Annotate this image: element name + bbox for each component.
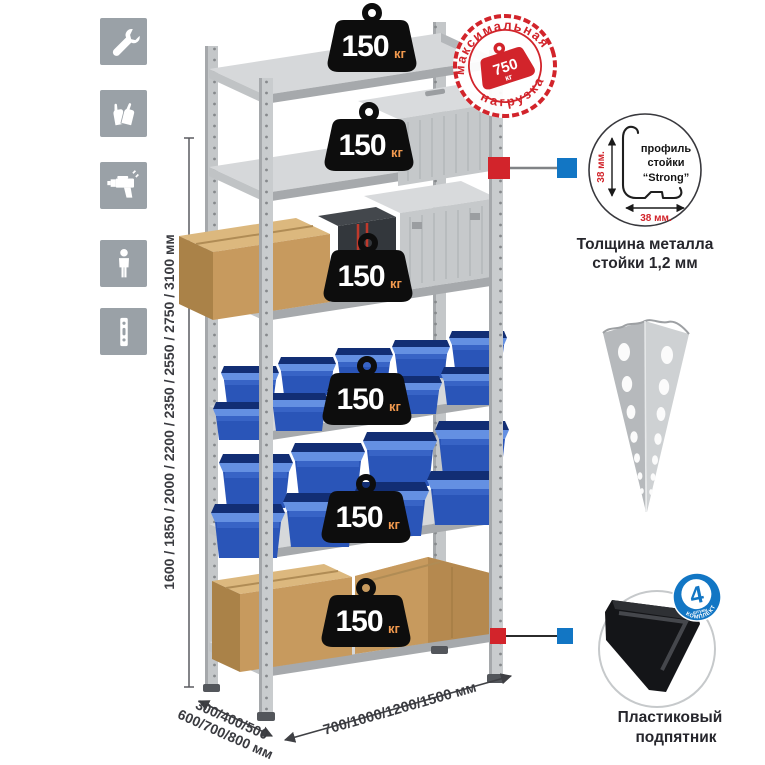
load-unit: кг [391, 145, 404, 160]
width-dimension: 700/1000/1200/1500 мм [285, 676, 511, 740]
connector-blue-square [557, 628, 573, 644]
connector-blue-square [557, 158, 577, 178]
width-label: 700/1000/1200/1500 мм [321, 680, 478, 739]
load-badge-1: 150 кг [328, 6, 417, 72]
connector-red-square [488, 157, 510, 179]
rack-scene: 1600 / 1850 / 2000 / 2200 / 2350 / 2550 … [0, 0, 765, 765]
load-value: 150 [335, 605, 382, 638]
profile-dim-horizontal: 38 мм. [640, 213, 672, 224]
load-unit: кг [390, 276, 403, 291]
front-left-post [259, 78, 273, 712]
storage-bin [219, 454, 293, 508]
post-foot [257, 712, 275, 721]
plastic-foot-inset: 4 штуки в комплекте Пластиковый подпятни… [599, 569, 725, 746]
load-unit: кг [394, 46, 407, 61]
profile-label-2: стойки [647, 157, 684, 169]
load-value: 150 [335, 501, 382, 534]
load-unit: кг [389, 399, 402, 414]
foot-caption-1: Пластиковый [618, 709, 723, 726]
profile-callout-connector [488, 157, 577, 179]
storage-bin [392, 340, 450, 378]
foot-callout-connector [490, 628, 573, 644]
post-foot [431, 646, 448, 654]
load-value: 150 [336, 383, 383, 416]
height-dimension: 1600 / 1850 / 2000 / 2200 / 2350 / 2550 … [161, 138, 194, 687]
thickness-caption-1: Толщина металла [577, 236, 714, 253]
product-infographic: 1600 / 1850 / 2000 / 2200 / 2350 / 2550 … [0, 0, 765, 765]
profile-label-3: “Strong” [643, 172, 689, 184]
front-right-post [489, 50, 503, 674]
foot-caption-2: подпятник [635, 729, 716, 746]
connector-red-square [490, 628, 506, 644]
storage-bin [278, 357, 336, 395]
height-dimension-label: 1600 / 1850 / 2000 / 2200 / 2350 / 2550 … [161, 234, 177, 589]
thickness-caption-2: стойки 1,2 мм [592, 255, 697, 272]
storage-bin [363, 432, 437, 486]
upright-profile-image [603, 320, 689, 512]
profile-label-1: профиль [641, 143, 691, 155]
storage-bin [291, 443, 365, 497]
load-unit: кг [388, 517, 401, 532]
load-unit: кг [388, 621, 401, 636]
profile-dim-vertical: 38 мм. [596, 151, 607, 183]
load-value: 150 [341, 30, 388, 63]
profile-inset: 38 мм. 38 мм. профиль стойки “Strong” То… [577, 114, 714, 272]
load-value: 150 [337, 260, 384, 293]
storage-bin [211, 504, 285, 558]
post-foot [203, 684, 220, 692]
load-value: 150 [338, 129, 385, 162]
cardboard-box-shelf3 [179, 218, 330, 320]
storage-bin [270, 393, 328, 431]
